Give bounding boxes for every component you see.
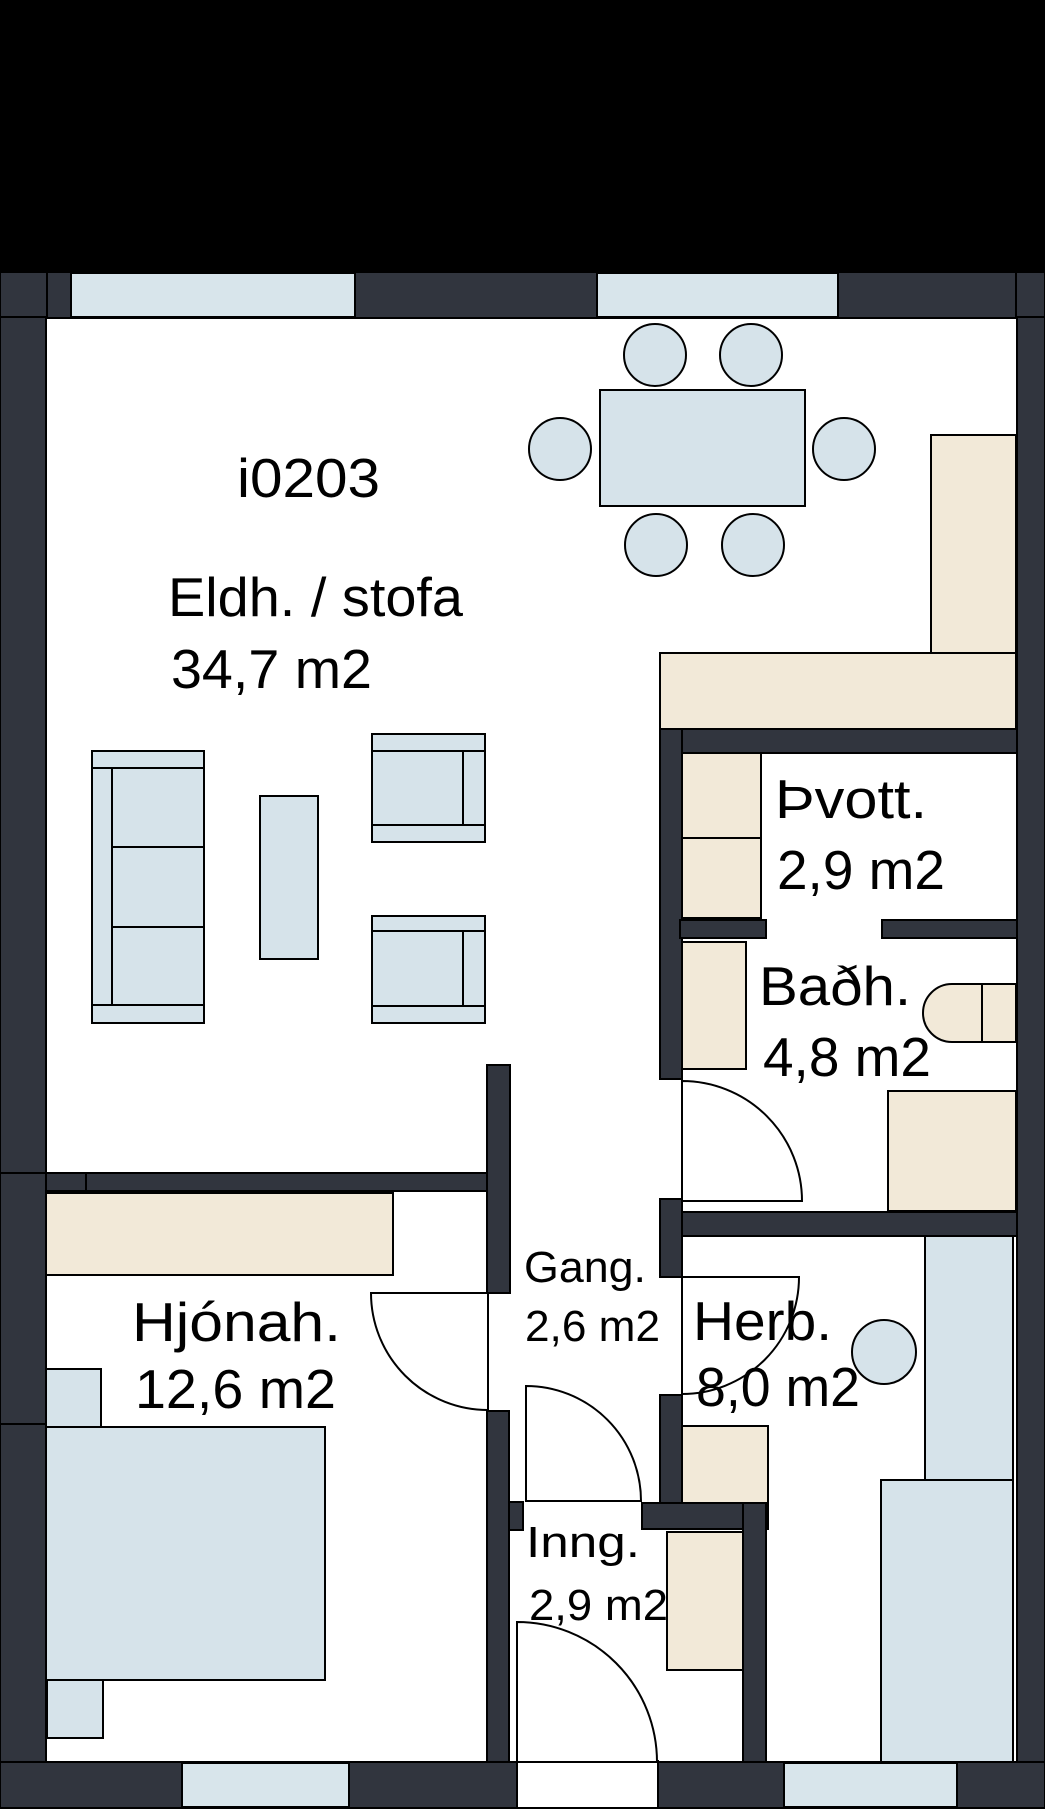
svg-text:i0203: i0203: [237, 447, 380, 509]
svg-text:2,9 m2: 2,9 m2: [777, 839, 945, 901]
svg-text:12,6 m2: 12,6 m2: [135, 1358, 336, 1420]
svg-text:34,7 m2: 34,7 m2: [171, 638, 372, 700]
svg-text:Baðh.: Baðh.: [759, 955, 911, 1017]
svg-text:2,6 m2: 2,6 m2: [525, 1302, 660, 1351]
svg-text:4,8 m2: 4,8 m2: [763, 1026, 931, 1088]
svg-text:Herb.: Herb.: [693, 1290, 832, 1352]
svg-text:8,0 m2: 8,0 m2: [696, 1356, 860, 1418]
svg-text:Eldh. / stofa: Eldh. / stofa: [168, 566, 463, 628]
svg-text:2,9 m2: 2,9 m2: [529, 1581, 668, 1630]
svg-text:Þvott.: Þvott.: [775, 768, 927, 830]
svg-text:Gang.: Gang.: [524, 1243, 646, 1292]
svg-text:Hjónah.: Hjónah.: [132, 1291, 341, 1353]
svg-text:Inng.: Inng.: [526, 1518, 640, 1567]
